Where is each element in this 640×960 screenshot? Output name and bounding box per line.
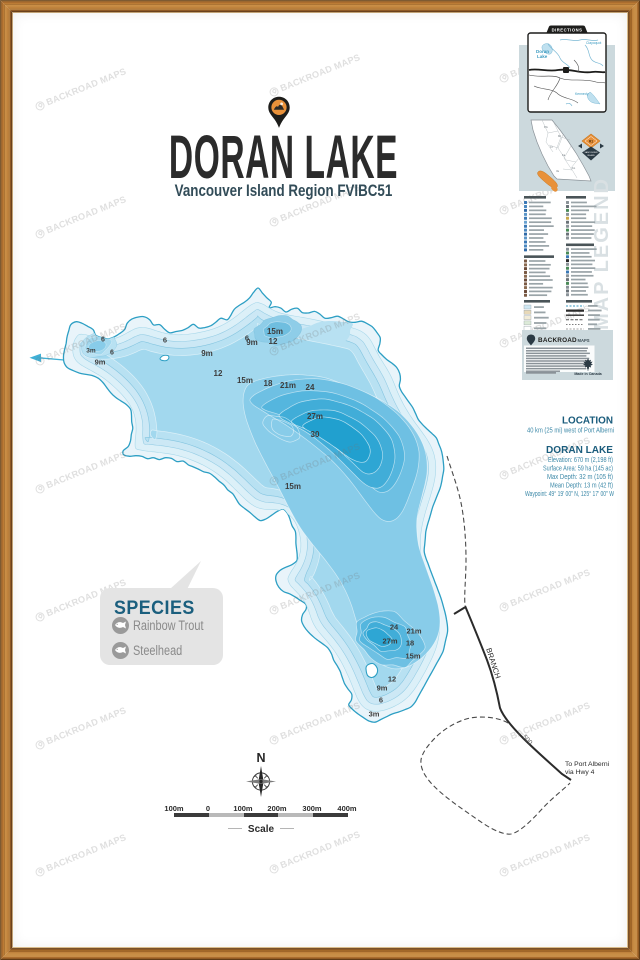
svg-text:Surface Area: 59 ha (145 ac): Surface Area: 59 ha (145 ac) (543, 466, 613, 473)
svg-text:Clayoquot: Clayoquot (586, 41, 601, 45)
svg-text:ISLAND: ISLAND (587, 154, 595, 157)
svg-text:Mean Depth: 13 m (42 ft): Mean Depth: 13 m (42 ft) (550, 483, 613, 490)
svg-text:40 km (25 mi) west of Port Alb: 40 km (25 mi) west of Port Alberni (527, 428, 614, 435)
svg-text:Ka: Ka (562, 153, 566, 157)
svg-text:LOCATION: LOCATION (562, 414, 613, 426)
svg-text:Mt: Mt (558, 134, 561, 138)
svg-text:Cr: Cr (550, 145, 553, 149)
svg-text:PG: PG (544, 125, 548, 129)
svg-text:MAPS: MAPS (578, 338, 590, 343)
svg-text:Kennedy: Kennedy (575, 92, 589, 96)
svg-text:Elevation: 670 m (2,198 ft): Elevation: 670 m (2,198 ft) (548, 457, 613, 464)
svg-text:Ko: Ko (572, 166, 576, 170)
svg-text:MAP LEGEND: MAP LEGEND (591, 177, 613, 330)
svg-text:DIRECTIONS: DIRECTIONS (552, 28, 583, 33)
svg-text:Waypoint: 49° 19' 00" N, 125°: Waypoint: 49° 19' 00" N, 125° 17' 00" W (525, 490, 614, 498)
svg-text:VANCOUVER: VANCOUVER (584, 151, 598, 154)
svg-text:DORAN LAKE: DORAN LAKE (546, 445, 613, 456)
svg-text:Max Depth: 32 m (105 ft): Max Depth: 32 m (105 ft) (547, 474, 613, 481)
svg-text:Made in Canada: Made in Canada (574, 372, 602, 376)
svg-text:BACKROAD: BACKROAD (538, 337, 577, 344)
svg-text:Lake: Lake (537, 54, 548, 59)
svg-text:R1: R1 (589, 139, 593, 143)
